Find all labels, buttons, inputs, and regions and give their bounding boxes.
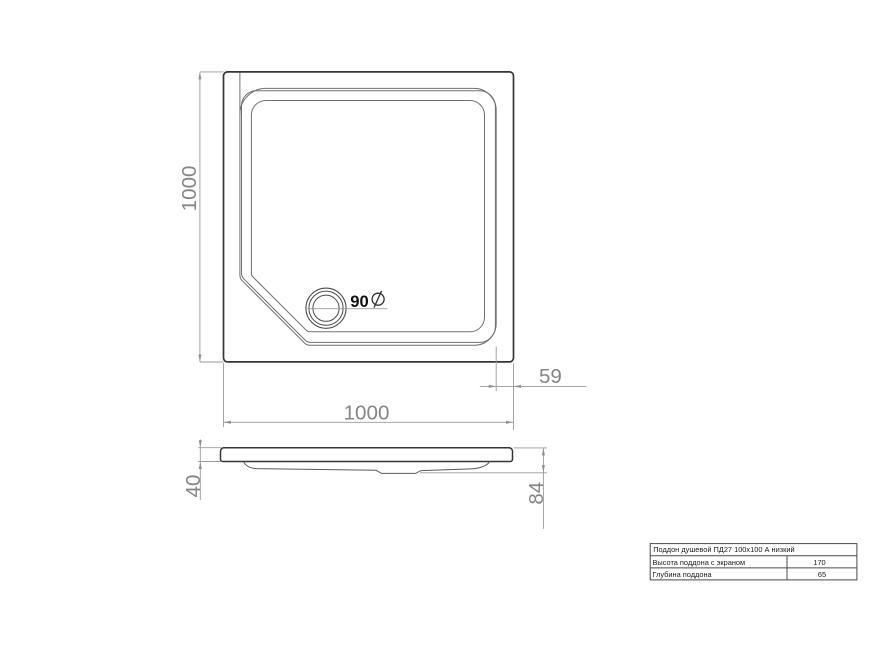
- svg-text:1000: 1000: [344, 401, 390, 424]
- svg-text:65: 65: [818, 570, 826, 579]
- svg-text:Глубина поддона: Глубина поддона: [653, 570, 713, 579]
- svg-text:40: 40: [182, 475, 205, 498]
- svg-text:Высота поддона с экраном: Высота поддона с экраном: [653, 558, 746, 567]
- svg-text:84: 84: [525, 482, 548, 505]
- svg-text:59: 59: [539, 365, 562, 388]
- svg-text:Поддон душевой ПД27 100x100 А: Поддон душевой ПД27 100x100 А низкий: [653, 545, 794, 554]
- svg-text:170: 170: [813, 558, 825, 567]
- svg-text:1000: 1000: [178, 165, 201, 211]
- svg-text:90: 90: [350, 292, 368, 311]
